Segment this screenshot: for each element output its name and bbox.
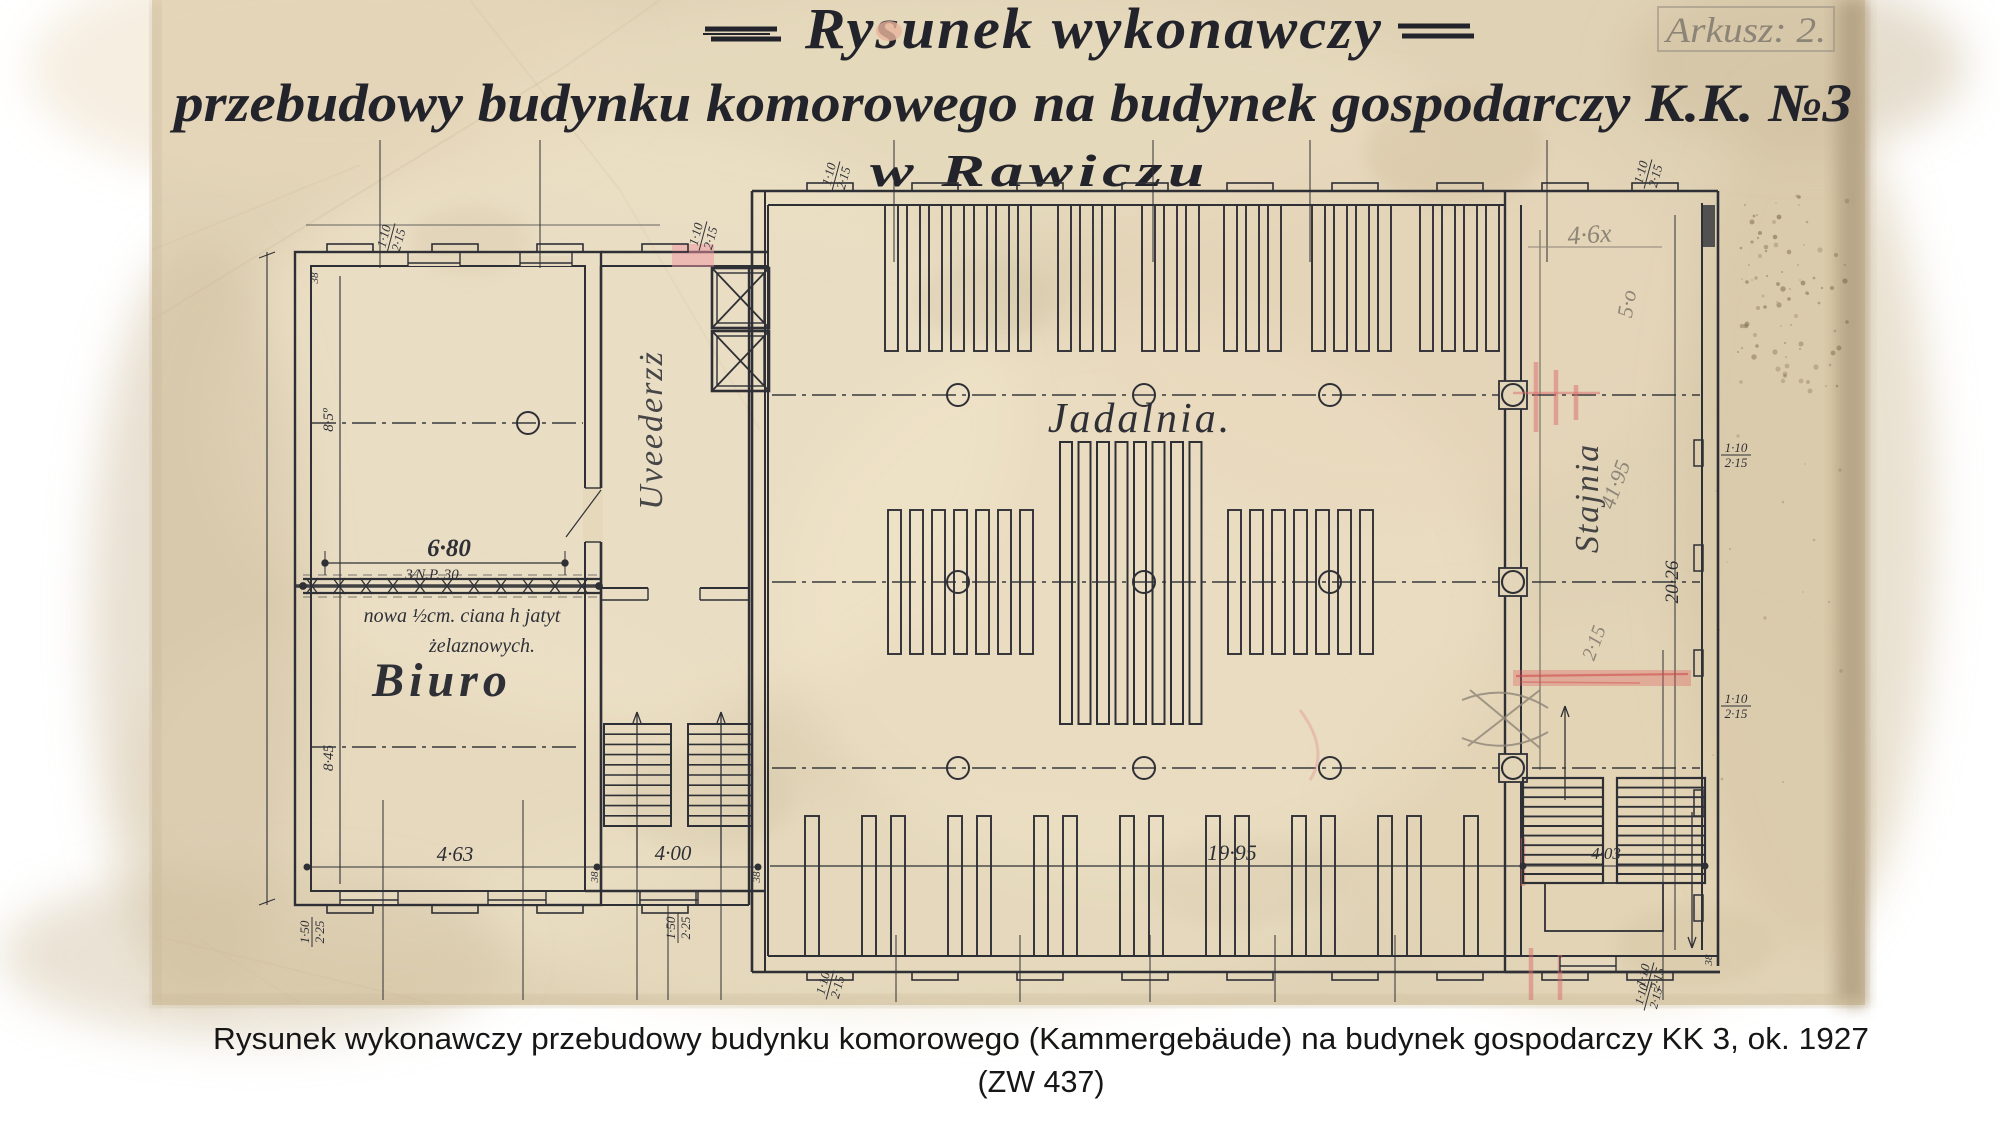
svg-text:nowa ½cm. ciana h jatyt: nowa ½cm. ciana h jatyt — [364, 605, 561, 627]
svg-text:38: 38 — [309, 272, 321, 285]
svg-text:2·15: 2·15 — [1725, 706, 1748, 721]
svg-text:Rysunek wykonawczy przebudowy: Rysunek wykonawczy przebudowy budynku ko… — [213, 1022, 1869, 1056]
svg-text:4·63: 4·63 — [437, 842, 474, 866]
svg-text:1·10: 1·10 — [1725, 440, 1748, 455]
svg-text:38: 38 — [589, 871, 601, 884]
svg-text:(ZW 437): (ZW 437) — [977, 1065, 1104, 1099]
svg-text:19·95: 19·95 — [1207, 840, 1257, 865]
svg-text:Biuro: Biuro — [371, 654, 512, 707]
svg-text:8·5º: 8·5º — [321, 408, 337, 432]
svg-text:w Rawiczu: w Rawiczu — [870, 145, 1210, 196]
svg-text:38: 38 — [751, 871, 763, 884]
svg-text:2·25: 2·25 — [312, 920, 327, 943]
svg-text:6·80: 6·80 — [427, 535, 471, 562]
svg-text:2·15: 2·15 — [1725, 455, 1748, 470]
svg-text:Uveederzż: Uveederzż — [633, 350, 670, 510]
svg-text:38: 38 — [1703, 954, 1715, 967]
svg-text:4·6x: 4·6x — [1566, 218, 1612, 250]
svg-text:4·03: 4·03 — [1591, 844, 1621, 863]
svg-text:przebudowy budynku komorowego: przebudowy budynku komorowego na budynek… — [170, 73, 1852, 133]
svg-text:4·00: 4·00 — [655, 841, 692, 865]
svg-text:Stajnia: Stajnia — [1569, 443, 1606, 553]
svg-text:2·25: 2·25 — [678, 916, 693, 939]
svg-text:20·26: 20·26 — [1662, 560, 1683, 603]
svg-text:Jadalnia.: Jadalnia. — [1048, 396, 1232, 442]
svg-text:Arkusz: 2.: Arkusz: 2. — [1664, 10, 1826, 50]
svg-text:1·50: 1·50 — [297, 920, 312, 943]
svg-text:8·45: 8·45 — [321, 744, 337, 771]
svg-text:5·o: 5·o — [1612, 288, 1641, 319]
svg-text:1·10: 1·10 — [1725, 691, 1748, 706]
svg-text:1·50: 1·50 — [663, 916, 678, 939]
